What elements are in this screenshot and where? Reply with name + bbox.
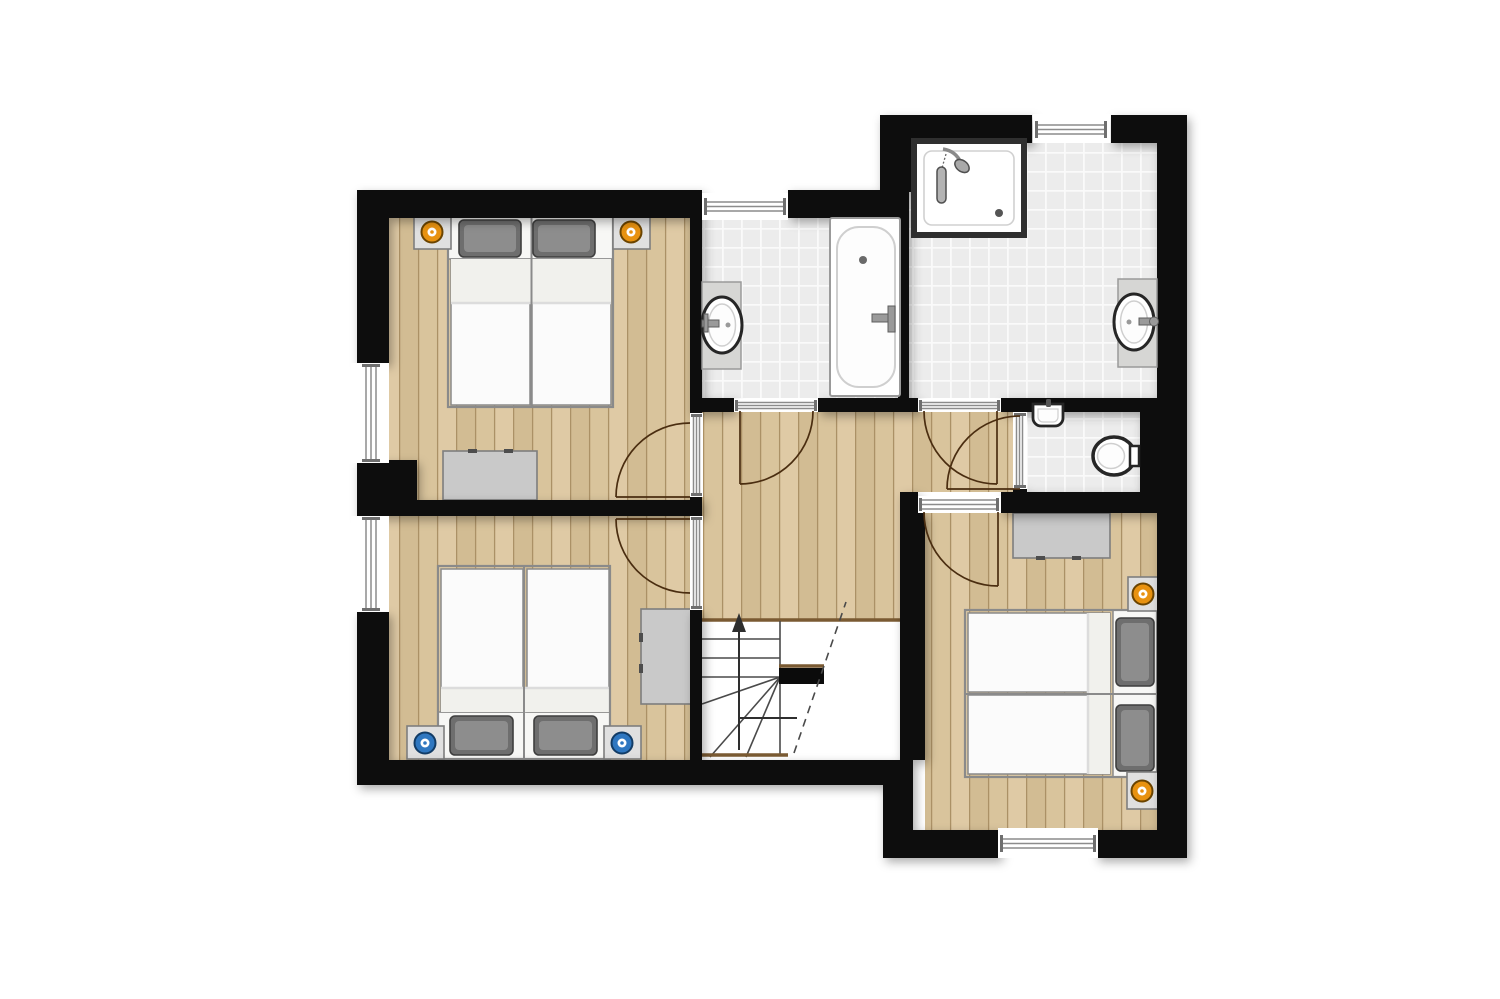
- window-bedroom-bottom-left: [351, 516, 389, 612]
- pillow: [1116, 618, 1154, 686]
- drain: [1127, 320, 1132, 325]
- floor-plan-canvas: [0, 0, 1500, 999]
- nightstand-blue-left: [407, 726, 444, 759]
- tub-faucet-icon: [888, 306, 895, 332]
- dresser-handle: [504, 449, 513, 453]
- bed-bottom-left: [438, 566, 610, 759]
- pillow: [450, 716, 513, 755]
- pillow: [534, 716, 597, 755]
- nightstand-orange-top-right-room: [1128, 577, 1158, 611]
- window-bathroom-middle: [702, 193, 788, 220]
- shower-riser-icon: [937, 167, 946, 203]
- bed-right: [965, 610, 1157, 777]
- drain: [859, 256, 867, 264]
- bed-top-left: [448, 215, 613, 407]
- pillow: [533, 220, 595, 257]
- washbasin-top-right-bathroom: [1114, 279, 1159, 367]
- window-bedroom-top-left: [351, 363, 389, 463]
- pillow: [459, 220, 521, 257]
- window-bathroom-top-right: [1033, 114, 1110, 143]
- dresser-handle: [639, 633, 643, 642]
- floor-plan-page: [0, 0, 1500, 999]
- landing-guard: [779, 668, 824, 684]
- dresser-bottom-left-room: [639, 609, 692, 704]
- dresser-handle: [468, 449, 477, 453]
- dresser-handle: [1072, 556, 1081, 560]
- dresser-right-room: [1013, 513, 1110, 560]
- drain: [995, 209, 1003, 217]
- window-bedroom-right: [998, 828, 1098, 858]
- bathtub: [830, 218, 900, 396]
- dresser-handle: [1036, 556, 1045, 560]
- nightstand-orange-left: [414, 215, 451, 249]
- pillow: [1116, 705, 1154, 771]
- dresser-top-left-room: [443, 449, 537, 500]
- toilet-cistern: [1130, 446, 1139, 466]
- washbasin-middle-bathroom: [702, 282, 742, 369]
- drain: [726, 323, 731, 328]
- wc-basin: [1033, 399, 1063, 426]
- nightstand-orange-right: [613, 215, 650, 249]
- faucet-icon: [704, 314, 708, 332]
- faucet-icon: [1046, 399, 1051, 407]
- nightstand-orange-bottom-right-room: [1127, 772, 1158, 809]
- stairwell-opening: [702, 620, 900, 760]
- shower: [914, 141, 1024, 235]
- nightstand-blue-right: [604, 726, 641, 759]
- dresser-handle: [639, 664, 643, 673]
- faucet-knob-icon: [1150, 317, 1159, 326]
